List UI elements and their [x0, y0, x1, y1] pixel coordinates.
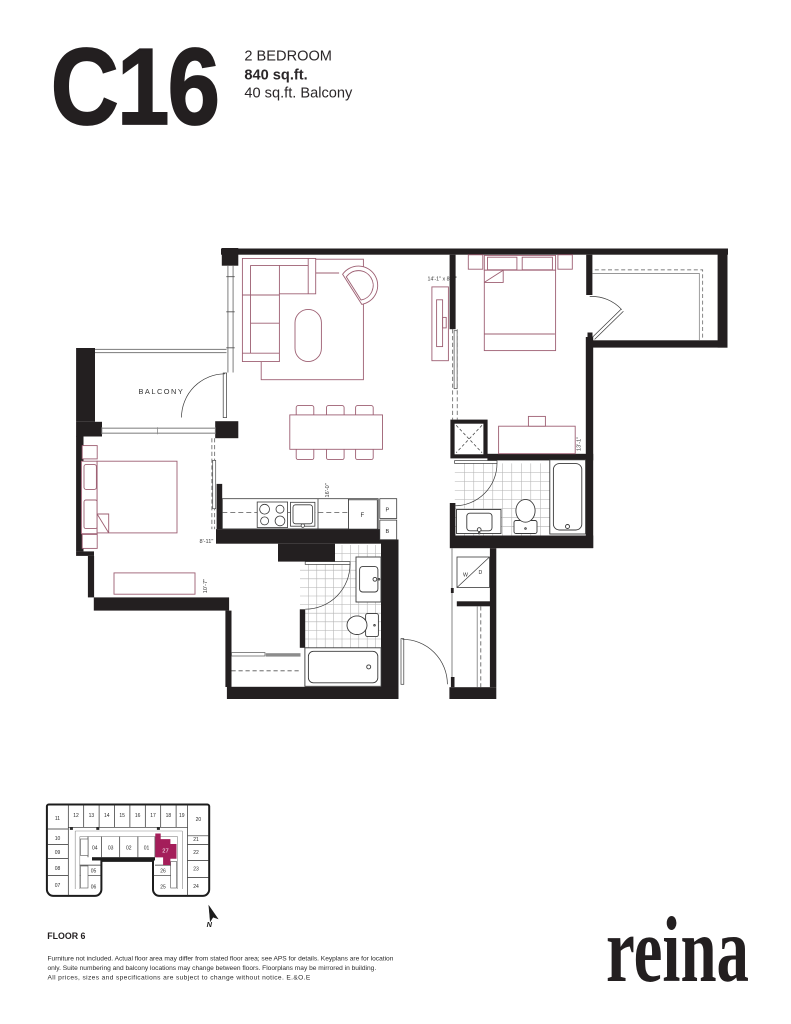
svg-text:15: 15 [119, 813, 125, 819]
svg-text:reina: reina [606, 899, 749, 1002]
svg-text:12: 12 [73, 813, 79, 819]
svg-text:8'-11": 8'-11" [200, 539, 214, 545]
svg-text:P: P [386, 508, 390, 514]
svg-text:01: 01 [144, 846, 150, 852]
svg-text:C16: C16 [51, 26, 219, 148]
svg-text:40 sq.ft. Balcony: 40 sq.ft. Balcony [244, 85, 353, 101]
svg-text:2 BEDROOM: 2 BEDROOM [244, 48, 332, 64]
svg-text:18: 18 [166, 813, 172, 819]
svg-text:N: N [207, 920, 213, 929]
svg-text:13: 13 [89, 813, 95, 819]
svg-text:05: 05 [91, 869, 97, 875]
svg-text:FLOOR 6: FLOOR 6 [47, 931, 85, 941]
svg-text:11: 11 [55, 816, 60, 822]
svg-text:06: 06 [91, 885, 97, 891]
svg-text:27: 27 [162, 849, 168, 855]
svg-text:26: 26 [160, 869, 166, 875]
svg-text:Furniture not included. Actual: Furniture not included. Actual floor are… [48, 955, 394, 962]
svg-text:10: 10 [55, 836, 61, 842]
svg-text:W: W [463, 573, 468, 579]
svg-text:08: 08 [55, 866, 61, 872]
svg-text:All prices, sizes and specific: All prices, sizes and specifications are… [48, 975, 311, 982]
svg-text:840 sq.ft.: 840 sq.ft. [244, 68, 307, 84]
svg-text:19: 19 [179, 813, 185, 819]
svg-text:17: 17 [150, 813, 156, 819]
svg-text:07: 07 [55, 883, 61, 889]
svg-text:02: 02 [126, 846, 132, 852]
svg-text:20: 20 [196, 817, 202, 823]
svg-text:B: B [386, 529, 390, 535]
svg-text:23: 23 [193, 867, 199, 873]
svg-text:13'-1": 13'-1" [577, 437, 583, 451]
svg-text:16: 16 [135, 813, 141, 819]
svg-text:14: 14 [104, 813, 110, 819]
svg-text:F: F [361, 513, 365, 519]
svg-text:04: 04 [92, 846, 98, 852]
svg-text:09: 09 [55, 850, 61, 856]
svg-text:D: D [479, 570, 483, 576]
svg-text:only. Suite numbering and balc: only. Suite numbering and balcony locati… [48, 965, 377, 972]
svg-text:24: 24 [193, 884, 199, 890]
svg-text:22: 22 [193, 850, 199, 856]
svg-text:03: 03 [108, 846, 114, 852]
svg-text:10'-7": 10'-7" [203, 579, 209, 593]
svg-text:21: 21 [193, 837, 199, 843]
svg-text:BALCONY: BALCONY [139, 387, 185, 396]
svg-text:25: 25 [160, 885, 166, 891]
svg-text:16'-0": 16'-0" [325, 483, 331, 497]
